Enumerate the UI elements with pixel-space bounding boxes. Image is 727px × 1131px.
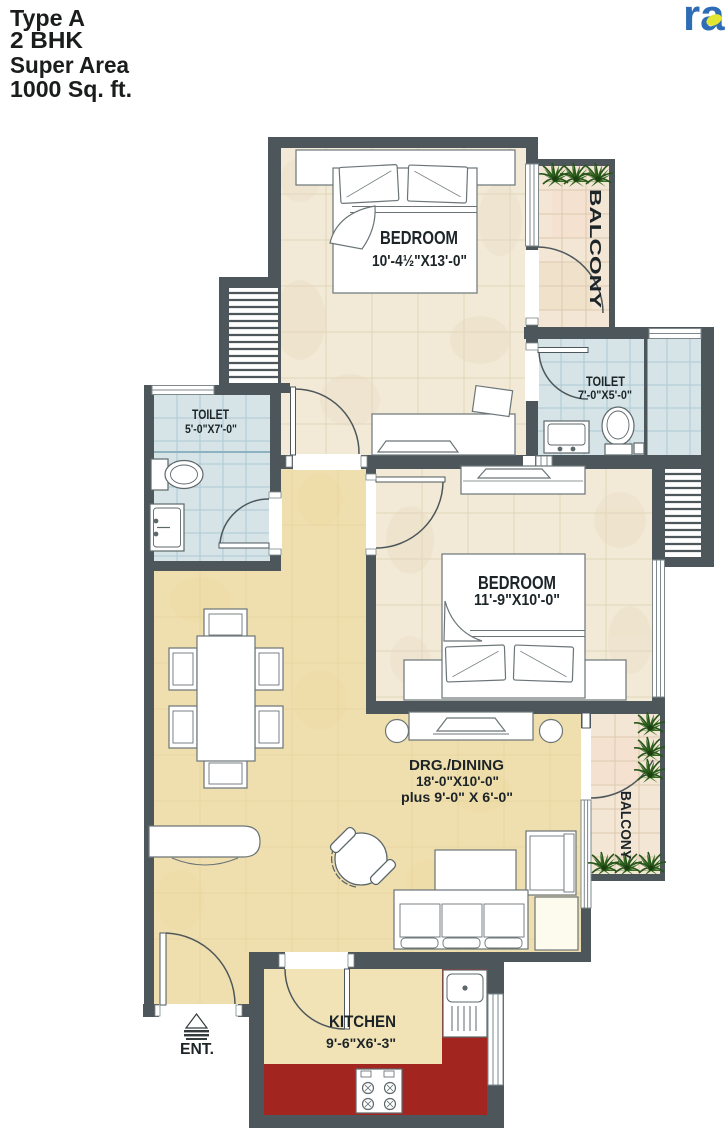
svg-text:BEDROOM: BEDROOM (478, 573, 556, 593)
svg-text:7'-0"X5'-0": 7'-0"X5'-0" (578, 388, 632, 402)
svg-text:BEDROOM: BEDROOM (380, 228, 458, 248)
svg-text:KITCHEN: KITCHEN (329, 1012, 396, 1031)
svg-text:plus 9'-0" X 6'-0": plus 9'-0" X 6'-0" (401, 789, 513, 805)
svg-text:Super Area: Super Area (10, 52, 129, 78)
svg-text:TOILET: TOILET (586, 373, 625, 389)
svg-text:BALCONY: BALCONY (617, 791, 634, 859)
svg-text:DRG./DINING: DRG./DINING (409, 757, 504, 774)
svg-text:11'-9"X10'-0": 11'-9"X10'-0" (474, 592, 560, 609)
svg-text:2 BHK: 2 BHK (10, 27, 83, 53)
svg-text:1000 Sq. ft.: 1000 Sq. ft. (10, 76, 132, 102)
svg-text:18'-0"X10'-0": 18'-0"X10'-0" (416, 773, 499, 789)
svg-text:ENT.: ENT. (180, 1041, 214, 1058)
svg-text:TOILET: TOILET (192, 406, 229, 422)
svg-text:BALCONY: BALCONY (586, 189, 603, 308)
svg-text:10'-4½"X13'-0": 10'-4½"X13'-0" (372, 253, 467, 270)
svg-text:5'-0"X7'-0": 5'-0"X7'-0" (185, 422, 237, 436)
svg-text:9'-6"X6'-3": 9'-6"X6'-3" (326, 1035, 396, 1051)
